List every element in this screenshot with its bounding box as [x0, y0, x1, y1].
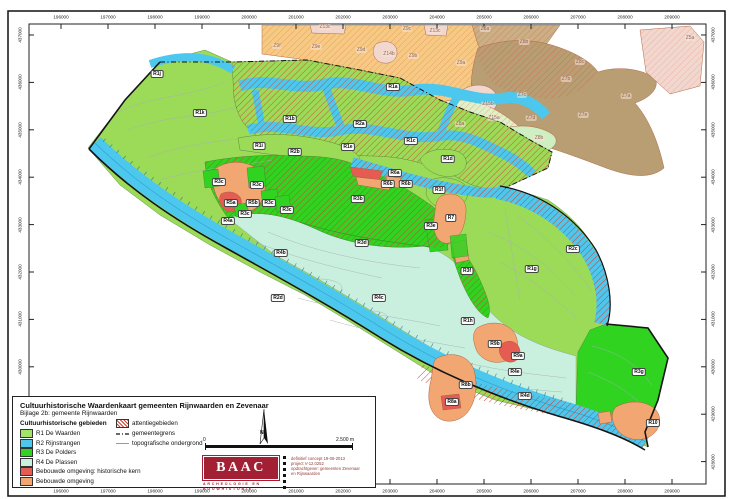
north-label: N: [260, 430, 264, 436]
legend-item-4: R4 De Plassen: [20, 458, 77, 467]
baac-logo: BAAC: [202, 455, 280, 481]
map-title: Cultuurhistorische Waardenkaart gemeente…: [20, 401, 269, 410]
baac-sub1: ARCHEOLOGIE EN: [203, 482, 261, 486]
legend-swatch: [20, 477, 33, 486]
scale-zero: 0: [203, 437, 206, 443]
legend-swatch: [20, 439, 33, 448]
legend-swatch: [20, 429, 33, 438]
areas-header: Cultuurhistorische gebieden: [20, 420, 107, 427]
legend-item-2: R2 Rijnstrangen: [20, 439, 80, 448]
credit-line: en Rijnwaarden: [291, 471, 371, 476]
map-sheet: 1960001960001970001970001980001980001990…: [0, 0, 732, 499]
legend-item-5: Bebouwde omgeving: historische kern: [20, 467, 141, 476]
legend-item-3: R3 De Polders: [20, 448, 76, 457]
baac-wordmark: BAAC: [216, 460, 266, 476]
legend-swatch: [20, 448, 33, 457]
legend-symbol-hatch: attentiegebieden: [116, 420, 178, 427]
legend-item-6: Bebouwde omgeving: [20, 477, 94, 486]
logo-dots: [283, 456, 286, 488]
legend-swatch: [20, 458, 33, 467]
scale-bar: [205, 445, 353, 448]
map-subtitle: Bijlage 2b: gemeente Rijnwaarden: [20, 410, 117, 417]
scale-max: 2.500 m: [336, 437, 354, 443]
north-arrow: N: [256, 408, 272, 448]
legend-symbol-dashdot: gemeentegrens: [116, 430, 175, 437]
legend-symbol-line: topografische ondergrond: [116, 440, 203, 447]
legend-item-1: R1 De Waarden: [20, 429, 80, 438]
baac-sub2: BOUWHISTORIE: [203, 487, 253, 491]
credits-block: definitief concept 19-06-2013project V-1…: [291, 456, 371, 476]
legend-swatch: [20, 467, 33, 476]
